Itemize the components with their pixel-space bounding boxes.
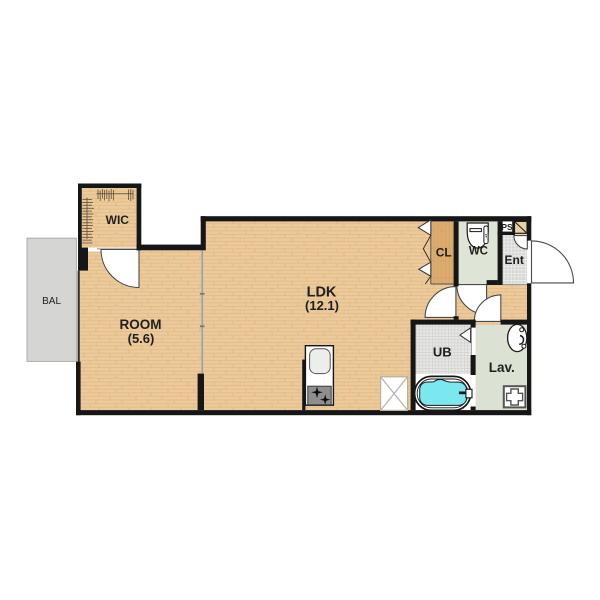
- svg-text:ROOM: ROOM: [120, 317, 162, 332]
- svg-text:CL: CL: [436, 245, 452, 259]
- svg-text:BAL: BAL: [42, 296, 61, 307]
- svg-text:(12.1): (12.1): [305, 298, 339, 313]
- svg-text:UB: UB: [433, 344, 452, 359]
- svg-text:WC: WC: [469, 246, 488, 258]
- svg-text:WIC: WIC: [106, 213, 130, 227]
- svg-text:(5.6): (5.6): [128, 331, 155, 346]
- svg-text:Lav.: Lav.: [489, 360, 515, 375]
- svg-text:PS: PS: [501, 222, 513, 232]
- svg-text:Ent: Ent: [505, 253, 524, 267]
